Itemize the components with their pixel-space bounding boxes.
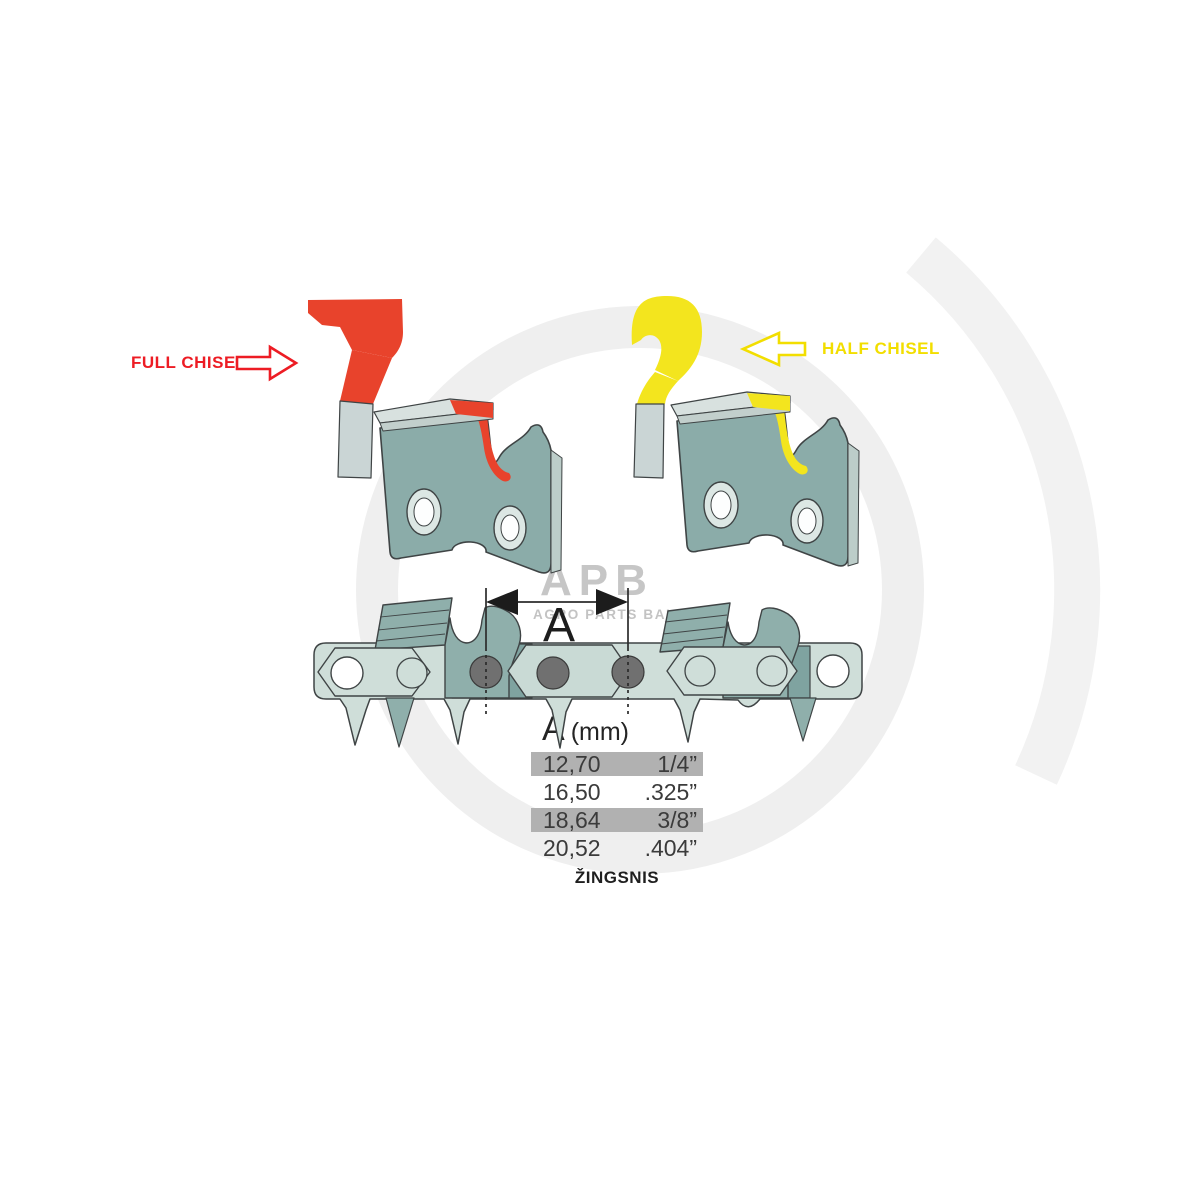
link-hole: [798, 508, 816, 534]
full-chisel-arrow-icon: [237, 347, 296, 379]
link-body: [677, 409, 848, 566]
link-hole: [501, 515, 519, 541]
chain-rivet: [757, 656, 787, 686]
dim-arrowhead-right: [596, 589, 628, 615]
full-chisel-cutter-link: [374, 399, 562, 573]
left-cutter-tang: [386, 698, 414, 747]
right-cutter-tang: [790, 698, 816, 741]
chain-illustration: [314, 598, 862, 748]
link-hole: [414, 498, 434, 526]
link-side-face: [848, 443, 859, 566]
full-chisel-stem: [338, 401, 373, 478]
full-chisel-top: [308, 299, 403, 358]
chain-hole: [331, 657, 363, 689]
half-chisel-stem: [634, 404, 664, 478]
link-hole: [711, 491, 731, 519]
half-chisel-cutter-link: [671, 392, 859, 566]
pitch-rivet-mid: [537, 657, 569, 689]
full-chisel-descender: [340, 350, 392, 404]
half-chisel-top: [632, 296, 702, 381]
chainsaw-chain-pitch-diagram: APB AGRO PARTS BALTIJA: [0, 0, 1188, 1188]
chain-rivet: [685, 656, 715, 686]
artwork: [0, 0, 1188, 1188]
half-chisel-arrow-icon: [743, 333, 805, 365]
link-body: [380, 416, 551, 573]
link-side-face: [551, 450, 562, 573]
chain-hole: [817, 655, 849, 687]
chain-rivet: [397, 658, 427, 688]
